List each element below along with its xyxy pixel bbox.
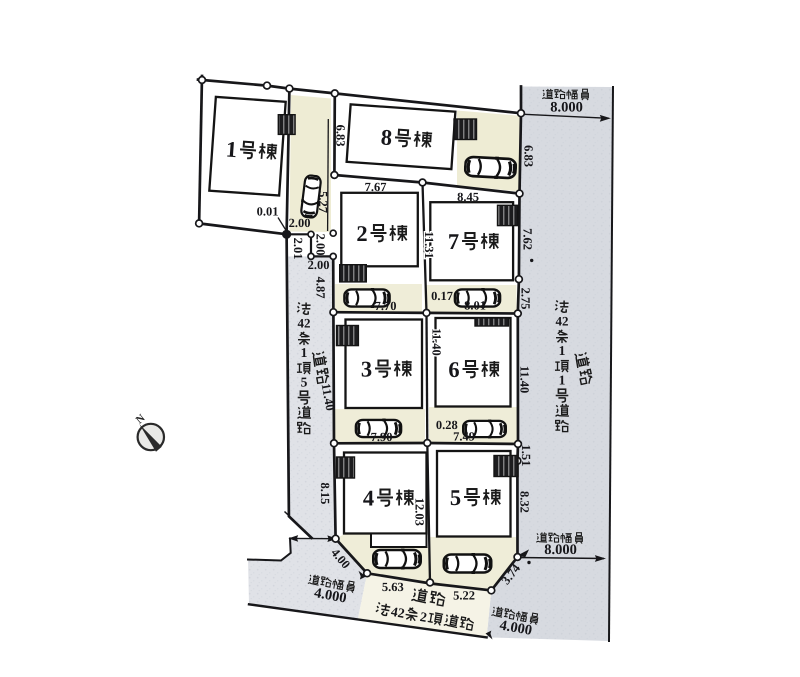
svg-text:42: 42 [556,314,569,329]
svg-text:5.27: 5.27 [316,191,330,213]
svg-text:8.01: 8.01 [464,299,486,313]
svg-text:8.45: 8.45 [457,190,479,204]
svg-text:12.03: 12.03 [412,498,426,526]
svg-text:2.01: 2.01 [291,238,305,260]
svg-text:2.00: 2.00 [314,234,328,256]
svg-text:7.67: 7.67 [365,180,387,194]
svg-text:5.22: 5.22 [453,589,475,603]
svg-text:1: 1 [301,345,308,360]
svg-text:2: 2 [356,221,367,246]
svg-text:42: 42 [390,604,406,621]
svg-text:5.63: 5.63 [382,580,404,594]
svg-text:6: 6 [448,357,459,382]
svg-text:8.32: 8.32 [517,491,531,513]
svg-text:1.51: 1.51 [519,445,533,467]
svg-text:11.31: 11.31 [422,231,436,258]
svg-text:7.90: 7.90 [371,430,393,444]
svg-text:1: 1 [225,136,238,162]
svg-text:6.83: 6.83 [522,145,536,167]
svg-text:8.000: 8.000 [550,100,583,116]
svg-text:1: 1 [559,373,566,388]
svg-text:42: 42 [298,316,311,331]
svg-text:0.01: 0.01 [257,205,279,219]
svg-text:7.49: 7.49 [453,430,475,444]
svg-text:8: 8 [380,124,393,150]
svg-text:6.83: 6.83 [334,125,348,147]
svg-text:2.00: 2.00 [308,258,330,272]
svg-text:8.15: 8.15 [318,482,332,504]
svg-text:7: 7 [448,229,459,254]
svg-text:5: 5 [450,485,461,510]
svg-text:3: 3 [361,357,372,382]
svg-text:1: 1 [559,343,566,358]
svg-text:11.40: 11.40 [517,366,531,393]
svg-text:8.000: 8.000 [544,542,577,558]
svg-text:5: 5 [301,375,308,390]
svg-text:4: 4 [363,486,374,511]
svg-text:2.00: 2.00 [289,216,311,230]
svg-text:7.62: 7.62 [521,228,535,250]
svg-text:4.87: 4.87 [314,277,328,299]
svg-text:2.75: 2.75 [519,288,533,310]
svg-text:7.70: 7.70 [375,299,397,313]
svg-text:11.40: 11.40 [430,328,444,355]
svg-text:0.17: 0.17 [431,289,453,303]
